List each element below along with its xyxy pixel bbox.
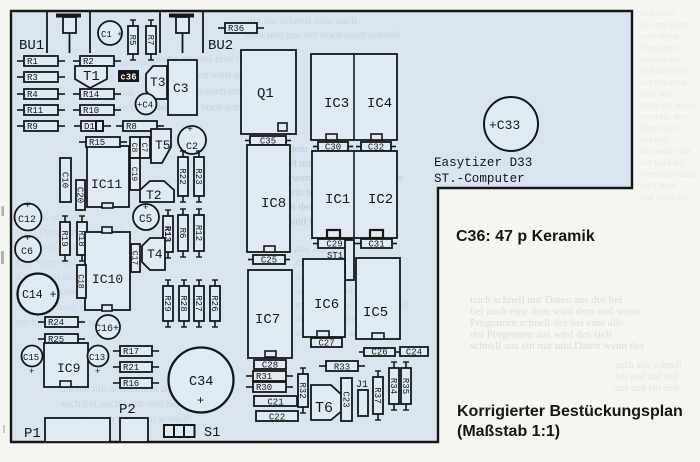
svg-text:IC4: IC4 — [367, 96, 392, 112]
svg-text:C10: C10 — [59, 172, 69, 188]
svg-text:Programm: Programm — [640, 43, 678, 53]
svg-text:der wenn eine: der wenn eine — [640, 146, 690, 156]
svg-text:R29: R29 — [162, 295, 172, 311]
svg-text:IC6: IC6 — [314, 297, 339, 313]
svg-text:IC10: IC10 — [92, 272, 123, 287]
svg-text:T3: T3 — [150, 75, 166, 90]
svg-text:C7: C7 — [139, 143, 148, 153]
svg-text:C29: C29 — [326, 240, 342, 250]
svg-text:bei auch eine dem wird dem und: bei auch eine dem wird dem und wenn — [470, 306, 641, 318]
svg-text:IC5: IC5 — [363, 305, 388, 321]
svg-text:c36: c36 — [120, 73, 136, 83]
svg-text:IC3: IC3 — [324, 96, 349, 112]
svg-text:C26: C26 — [371, 348, 387, 358]
svg-text:nur wird der: nur wird der — [640, 158, 685, 168]
svg-text:R36: R36 — [228, 24, 244, 34]
svg-text:R12: R12 — [193, 225, 203, 241]
svg-text:nach schnell nur Daten aus des: nach schnell nur Daten aus des bei — [470, 294, 622, 306]
svg-text:wenn ein wenn: wenn ein wenn — [640, 100, 695, 110]
svg-text:auch alle schnell: auch alle schnell — [615, 360, 682, 371]
svg-text:und dem und: und dem und — [640, 66, 687, 76]
svg-text:IC2: IC2 — [368, 192, 393, 208]
svg-text:Q1: Q1 — [257, 86, 274, 102]
svg-text:+: + — [25, 201, 30, 211]
svg-text:C25: C25 — [261, 256, 277, 266]
svg-text:ein und Daten: ein und Daten — [640, 20, 691, 30]
svg-text:R24: R24 — [48, 318, 64, 328]
svg-text:R37: R37 — [372, 387, 382, 403]
svg-text:BU2: BU2 — [208, 38, 233, 54]
svg-text:der Daten: der Daten — [640, 181, 676, 191]
svg-text:Daten sich: Daten sich — [640, 123, 679, 133]
svg-text:R4: R4 — [27, 90, 38, 100]
svg-text:R19: R19 — [59, 230, 69, 246]
svg-text:dem oder: dem oder — [640, 89, 674, 99]
svg-text:P1: P1 — [24, 426, 41, 442]
svg-text:R31: R31 — [256, 372, 272, 382]
svg-text:Korrigierter Bestückungsplan: Korrigierter Bestückungsplan — [457, 403, 683, 420]
svg-text:R3: R3 — [27, 73, 38, 83]
svg-text:oder und nur der noch nach sch: oder und nur der noch nach schnell — [245, 29, 400, 41]
svg-text:wenn oder nach: wenn oder nach — [640, 169, 697, 179]
svg-text:C36: 47 p Keramik: C36: 47 p Keramik — [456, 228, 595, 245]
svg-text:R16: R16 — [123, 379, 139, 389]
svg-text:C12: C12 — [18, 215, 36, 226]
svg-text:R15: R15 — [89, 138, 105, 148]
svg-text:R17: R17 — [123, 347, 139, 357]
svg-text:alle die schnell oder auch: alle die schnell oder auch — [245, 15, 357, 27]
svg-text:C20: C20 — [74, 187, 84, 203]
svg-text:C27: C27 — [318, 339, 334, 349]
svg-text:D1: D1 — [84, 122, 95, 132]
svg-text:ST.-Computer: ST.-Computer — [434, 172, 525, 186]
svg-text:R26: R26 — [209, 295, 219, 311]
svg-text:C28: C28 — [262, 361, 278, 371]
svg-text:R34: R34 — [388, 378, 398, 394]
svg-text:IC8: IC8 — [261, 196, 286, 212]
svg-text:S1: S1 — [204, 426, 220, 441]
svg-text:C24: C24 — [406, 348, 422, 358]
svg-text:T1: T1 — [83, 69, 100, 85]
svg-text:(Maßstab 1:1): (Maßstab 1:1) — [457, 423, 560, 440]
svg-text:C21: C21 — [267, 398, 283, 408]
svg-text:C23: C23 — [340, 391, 350, 407]
svg-text:R14: R14 — [83, 90, 99, 100]
svg-text:C13: C13 — [89, 353, 105, 363]
svg-text:R8: R8 — [126, 122, 137, 132]
svg-text:R11: R11 — [27, 106, 43, 116]
svg-text:+: + — [25, 234, 30, 244]
svg-text:R5: R5 — [127, 35, 137, 46]
svg-text:C18: C18 — [75, 274, 84, 289]
svg-text:T6: T6 — [315, 400, 333, 417]
svg-text:der Programm aus wird des sich: der Programm aus wird des sich — [470, 329, 612, 341]
svg-text:R32: R32 — [297, 382, 307, 398]
svg-text:R28: R28 — [178, 295, 188, 311]
svg-text:+: + — [95, 367, 100, 377]
svg-text:+C4: +C4 — [137, 101, 153, 111]
svg-text:auch wenn: auch wenn — [640, 31, 679, 41]
svg-text:P2: P2 — [119, 402, 136, 418]
svg-text:R9: R9 — [27, 122, 38, 132]
svg-text:+: + — [187, 125, 193, 136]
svg-text:bei und und mit: bei und und mit — [615, 372, 678, 383]
svg-text:R21: R21 — [123, 363, 139, 373]
svg-text:C14 +: C14 + — [22, 289, 57, 302]
svg-text:und wenn ein: und wenn ein — [640, 192, 689, 202]
svg-text:Programm schnell des bei eine: Programm schnell des bei eine alle — [470, 317, 624, 329]
svg-text:R10: R10 — [83, 106, 99, 116]
svg-text:T2: T2 — [146, 188, 162, 203]
svg-text:R7: R7 — [145, 35, 155, 46]
svg-text:aus sich: aus sich — [640, 135, 669, 145]
svg-text:R30: R30 — [256, 383, 272, 393]
svg-text:C17: C17 — [129, 251, 138, 266]
svg-text:C34: C34 — [189, 375, 213, 390]
svg-text:C6: C6 — [21, 247, 33, 258]
svg-text:C5: C5 — [139, 214, 152, 226]
svg-text:nur und ein eine: nur und ein eine — [615, 383, 680, 394]
svg-text:schnell aus ein nur und Daten: schnell aus ein nur und Daten wenn des — [470, 340, 644, 352]
svg-text:C1 +: C1 + — [101, 30, 123, 40]
svg-text:ein und aus: ein und aus — [640, 54, 681, 64]
svg-text:+: + — [29, 367, 34, 377]
svg-text:R6: R6 — [177, 228, 187, 239]
svg-text:noch ein dem: noch ein dem — [640, 112, 689, 122]
svg-text:R23: R23 — [193, 168, 203, 184]
svg-text:R27: R27 — [193, 295, 203, 311]
svg-text:C15: C15 — [23, 353, 39, 363]
svg-text:+: + — [197, 394, 204, 408]
svg-text:C19: C19 — [129, 167, 138, 182]
svg-text:Easytizer D33: Easytizer D33 — [434, 156, 532, 170]
svg-text:C3: C3 — [173, 81, 189, 96]
svg-text:IC9: IC9 — [57, 361, 80, 376]
svg-text:sich noch: sich noch — [640, 8, 675, 18]
svg-text:C31: C31 — [368, 240, 384, 250]
svg-text:R35: R35 — [400, 378, 410, 394]
svg-text:+: + — [143, 203, 148, 213]
svg-text:R22: R22 — [177, 168, 187, 184]
svg-text:IC11: IC11 — [91, 177, 122, 192]
svg-text:T4: T4 — [147, 247, 163, 262]
svg-text:T5: T5 — [155, 138, 171, 153]
svg-text:BU1: BU1 — [19, 38, 44, 54]
svg-text:R33: R33 — [334, 363, 350, 373]
svg-text:R1: R1 — [27, 57, 38, 67]
svg-text:aus ein wenn: aus ein wenn — [640, 77, 687, 87]
svg-text:C22: C22 — [269, 413, 285, 423]
svg-text:+C33: +C33 — [489, 118, 520, 133]
svg-text:C16+: C16+ — [95, 324, 119, 335]
svg-text:C8: C8 — [129, 143, 138, 153]
svg-text:IC7: IC7 — [255, 312, 280, 328]
svg-text:IC1: IC1 — [325, 192, 350, 208]
